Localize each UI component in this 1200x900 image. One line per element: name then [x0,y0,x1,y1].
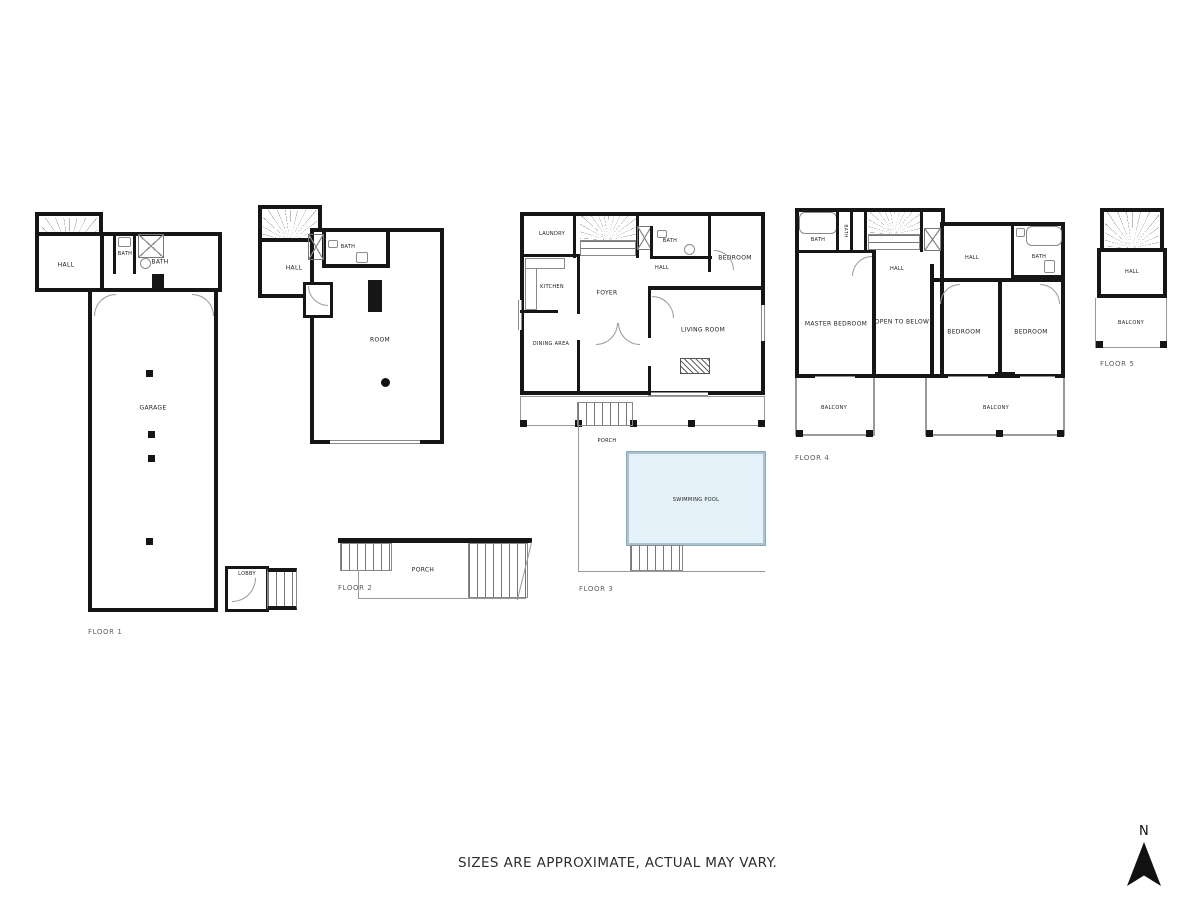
winder-stairs [580,216,636,240]
room-label-hall: HALL [286,265,303,272]
room-label-hall: HALL [1125,269,1139,275]
wall-segment [650,256,712,259]
wall-segment [520,310,558,313]
room-label-balcony-left: BALCONY [821,405,847,411]
wall-segment [577,340,580,395]
column [520,420,527,427]
wall-segment [864,208,867,252]
floorplan-canvas: HALL BATH BATH GARAGE LOBBY FLOOR 1 HALL… [0,0,1200,900]
room-label-bath: BATH [663,238,677,244]
window [761,305,765,341]
column [926,430,933,437]
compass-north-label: N [1139,824,1149,839]
room-label-open: OPEN TO BELOW [875,319,929,326]
column [1057,430,1064,437]
floor-caption-3: FLOOR 3 [579,585,613,593]
room-label-bath-closet: BATH [843,224,848,237]
room-label-pool: SWIMMING POOL [673,497,719,503]
wall-segment [708,212,711,272]
room-label-lobby: LOBBY [238,571,256,577]
room-label-living: LIVING ROOM [681,327,725,334]
column [148,431,155,438]
veranda [520,396,765,426]
column [866,430,873,437]
toilet [356,252,368,263]
room-label-room: ROOM [370,337,390,344]
shower [138,234,164,258]
room-label-kitchen: KITCHEN [540,284,564,290]
wall-segment [795,250,875,253]
column [1096,341,1103,348]
bathtub [1026,226,1062,246]
column [688,420,695,427]
wall-segment [998,282,1002,378]
room-label-bath: BATH [341,244,355,250]
disclaimer-text: SIZES ARE APPROXIMATE, ACTUAL MAY VARY. [458,855,777,871]
wall-segment [850,208,853,252]
shower [308,234,324,260]
room-label-bedroom-mid: BEDROOM [947,329,980,336]
room-label-foyer: FOYER [597,290,618,297]
toilet [1044,260,1055,273]
wall-segment [133,232,136,274]
room-label-balcony: BALCONY [1118,320,1144,326]
room-label-hall: HALL [58,262,75,269]
column [381,378,390,387]
wall-segment [573,212,576,258]
wall-segment [368,280,382,312]
column [758,420,765,427]
sink [1016,228,1025,237]
stairs [340,543,392,571]
floor-caption-2: FLOOR 2 [338,584,372,592]
column [796,430,803,437]
kitchen-counter [525,258,565,269]
room-label-laundry: LAUNDRY [539,231,565,237]
shower [924,228,941,251]
floor-caption-1: FLOOR 1 [88,628,122,636]
column [146,538,153,545]
deck-edge [578,571,765,572]
room-label-bath: BATH [151,259,168,266]
wall-segment [1011,222,1014,278]
sink [118,237,131,247]
north-arrow-icon [1127,842,1161,886]
wall-segment [920,208,923,252]
wall-segment [577,254,580,314]
stairs [868,234,920,250]
column [996,430,1003,437]
room-label-dining: DINING AREA [533,341,570,347]
wall-segment [836,208,839,252]
wall-segment [113,232,116,274]
room-label-bedroom-right: BEDROOM [1014,329,1047,336]
floor-caption-4: FLOOR 4 [795,454,829,462]
room-label-hall-left: HALL [890,266,904,272]
sink [657,230,667,238]
wall-segment [648,286,765,290]
window [518,300,522,330]
floor-caption-5: FLOOR 5 [1100,360,1134,368]
wall-segment [520,254,578,257]
column [146,370,153,377]
room-label-bath-small: BATH [118,251,132,257]
fireplace [680,358,710,374]
column [148,455,155,462]
winder-stairs [868,212,920,234]
wall-segment [648,366,651,395]
room-label-garage: GARAGE [140,405,167,412]
toilet [684,244,695,255]
room-label-bath-right: BATH [1032,254,1046,260]
room-label-porch: PORCH [412,567,434,574]
room-label-balcony-right: BALCONY [983,405,1009,411]
wall-segment [648,290,651,338]
room-label-master: MASTER BEDROOM [805,321,867,328]
entry-steps [577,402,633,426]
bathtub [799,212,837,234]
wall-segment [872,250,876,378]
garage-room [88,288,218,612]
room-label-hall: HALL [655,265,669,271]
winder-stairs [1105,212,1159,248]
sink [328,240,338,248]
column [1160,341,1167,348]
wall-segment [650,226,653,258]
window [330,440,420,444]
deck-edge [358,598,526,599]
room-label-porch: PORCH [598,438,617,444]
stairs [267,568,297,610]
pool-steps [630,545,683,571]
room-label-bath-left: BATH [811,237,825,243]
deck-edge [578,426,579,572]
room-label-hall-right: HALL [965,255,979,261]
stairs [580,240,636,256]
toilet [140,258,151,269]
